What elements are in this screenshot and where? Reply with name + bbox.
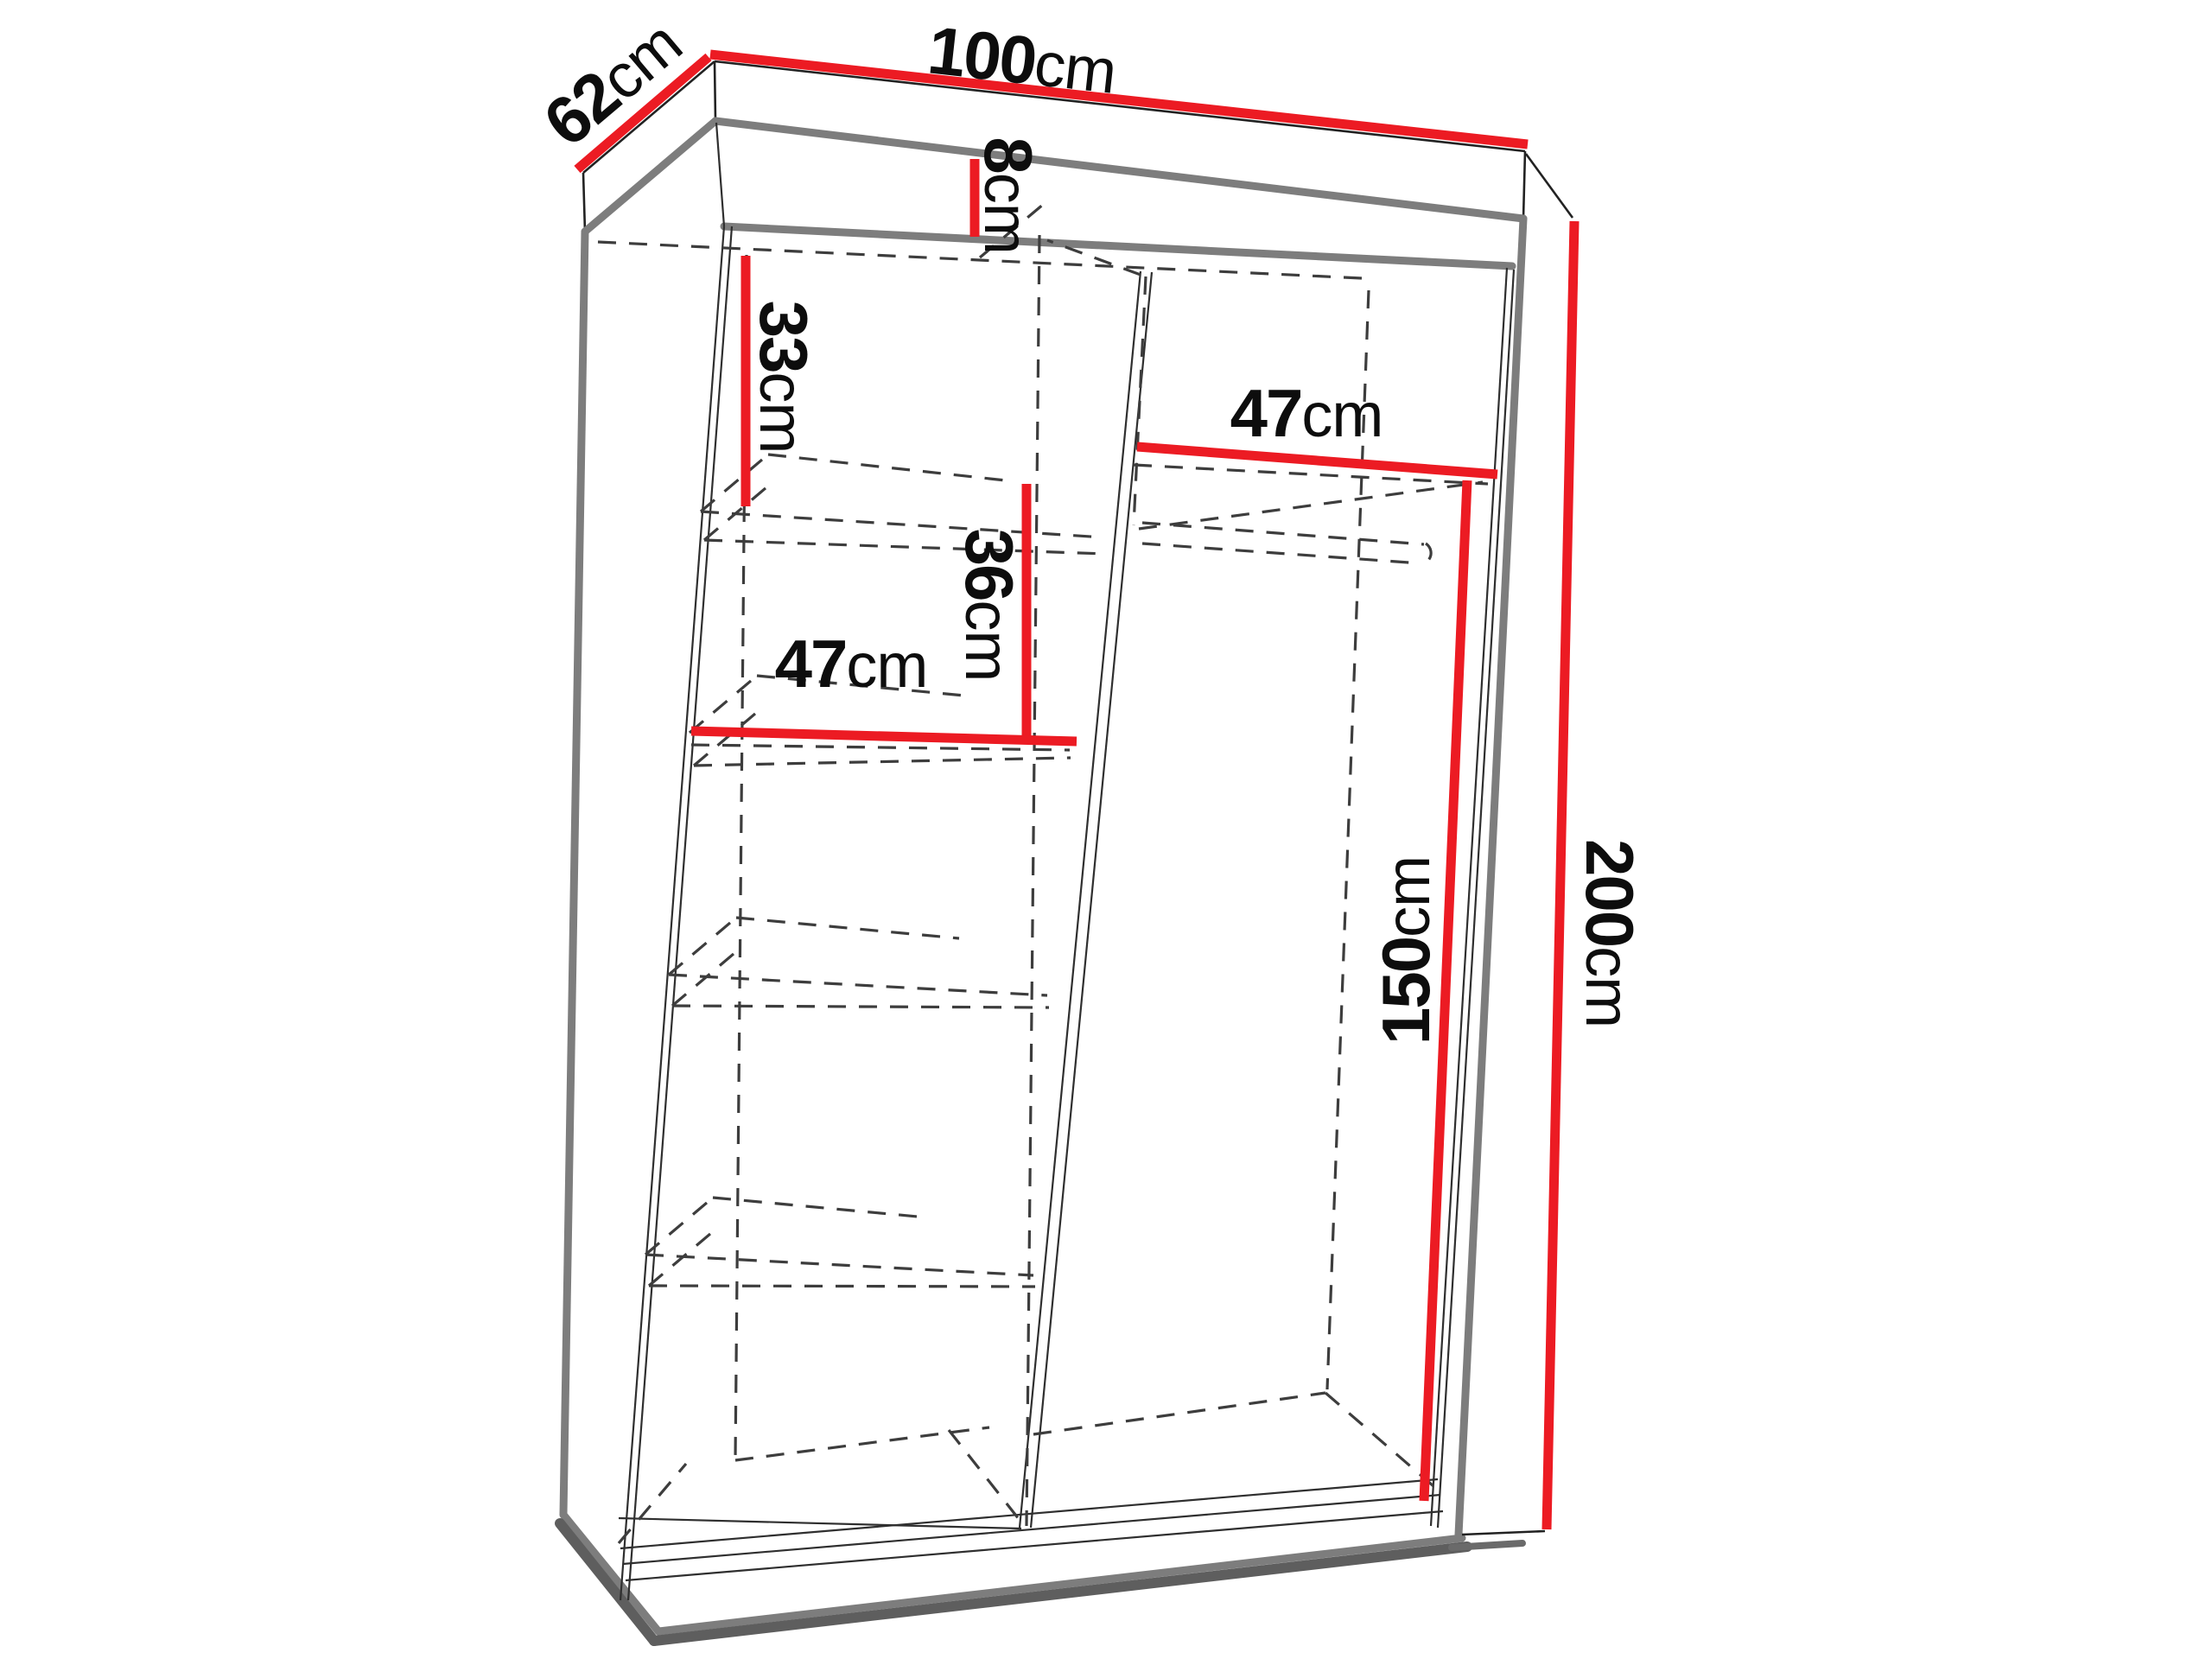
label-gap-36cm: 36cm [951, 529, 1027, 682]
left-panel-inner-edge-b [628, 226, 732, 1600]
bottom-track-1 [620, 1479, 1438, 1548]
top-corner-edge-right [1523, 151, 1525, 219]
dimension-lines [577, 54, 1574, 1529]
shelf-1-front [701, 512, 1104, 537]
floor-depth-left [619, 1464, 686, 1543]
label-rail-8cm: 8cm [970, 137, 1046, 253]
top-corner-edge-left [715, 61, 715, 121]
shelf-3-depth-b [672, 949, 740, 1006]
shelf-4-depth-b [649, 1229, 716, 1286]
wardrobe-dimension-diagram: 62cm 100cm 8cm 33cm 36cm 47cm 47cm 150cm… [0, 0, 2212, 1659]
hanging-rod-hidden [1142, 523, 1431, 564]
shelf-1-depth-a [701, 454, 768, 512]
shelf-2-depth-a [690, 676, 757, 733]
base-shadow-right [1452, 1543, 1522, 1548]
divider-front-edge-b [1031, 272, 1152, 1528]
back-right-corner-hidden [1327, 290, 1369, 1389]
dim-line-shelf-47-right [1137, 447, 1497, 474]
label-hanging-150cm: 150cm [1368, 856, 1444, 1045]
label-shelf-47cm-left: 47cm [775, 626, 928, 702]
label-gap-33cm: 33cm [746, 301, 822, 454]
left-panel-inner-edge-a [620, 226, 724, 1600]
shelf-1-front-lower [704, 540, 1106, 554]
shelf-3-front [669, 975, 1047, 995]
shelf-2-front-lower [694, 758, 1071, 766]
top-slab-front-edge [715, 121, 1523, 219]
right-outer-edge [1459, 219, 1523, 1535]
divider-side-edge-hidden [1134, 276, 1146, 525]
shelf-1-back [768, 454, 1006, 480]
shelf-3-front-lower [672, 1006, 1049, 1007]
dim-line-height-200 [1547, 221, 1574, 1529]
base-bottom-edge [658, 1538, 1462, 1631]
shelf-4-back [713, 1198, 918, 1217]
shelf-3-back [736, 918, 959, 938]
left-inner-corner-stub [716, 123, 724, 226]
floor-back-right [1033, 1393, 1325, 1434]
shelf-4-hidden [645, 1198, 1035, 1287]
interior-ceiling-edge [724, 226, 1512, 266]
base-shadow-bottom [654, 1547, 1467, 1641]
base-shadow-left [560, 1523, 654, 1641]
dim-line-width-100 [710, 54, 1528, 144]
shelf-4-front-lower [649, 1286, 1035, 1287]
rod-end-cap [1421, 543, 1431, 564]
shelf-1-hidden [701, 454, 1106, 554]
left-outer-edge [563, 232, 585, 1515]
top-corner-edge-front [583, 173, 585, 232]
wardrobe-drawing: 62cm 100cm 8cm 33cm 36cm 47cm 47cm 150cm… [0, 0, 2212, 1659]
rod-bottom [1142, 543, 1421, 563]
base-left-corner-edge [563, 1515, 658, 1631]
label-width-100cm: 100cm [925, 11, 1120, 107]
extension-line-top-right [1526, 154, 1573, 218]
dimension-labels: 62cm 100cm 8cm 33cm 36cm 47cm 47cm 150cm… [530, 4, 1648, 1045]
label-height-200cm: 200cm [1572, 839, 1648, 1027]
shelf-4-front [645, 1255, 1033, 1275]
shelf-2-front [691, 745, 1070, 750]
dim-line-shelf-47-left [691, 731, 1077, 741]
rod-top [1142, 523, 1424, 544]
floor-diagonal-left [949, 1430, 1022, 1523]
extension-line-bottom-right [1462, 1531, 1545, 1535]
shelf-3-hidden [669, 918, 1049, 1007]
right-shelf-back-diagonal [1139, 482, 1483, 529]
label-shelf-47cm-right: 47cm [1230, 375, 1383, 451]
wardrobe-carcass [560, 61, 1525, 1641]
